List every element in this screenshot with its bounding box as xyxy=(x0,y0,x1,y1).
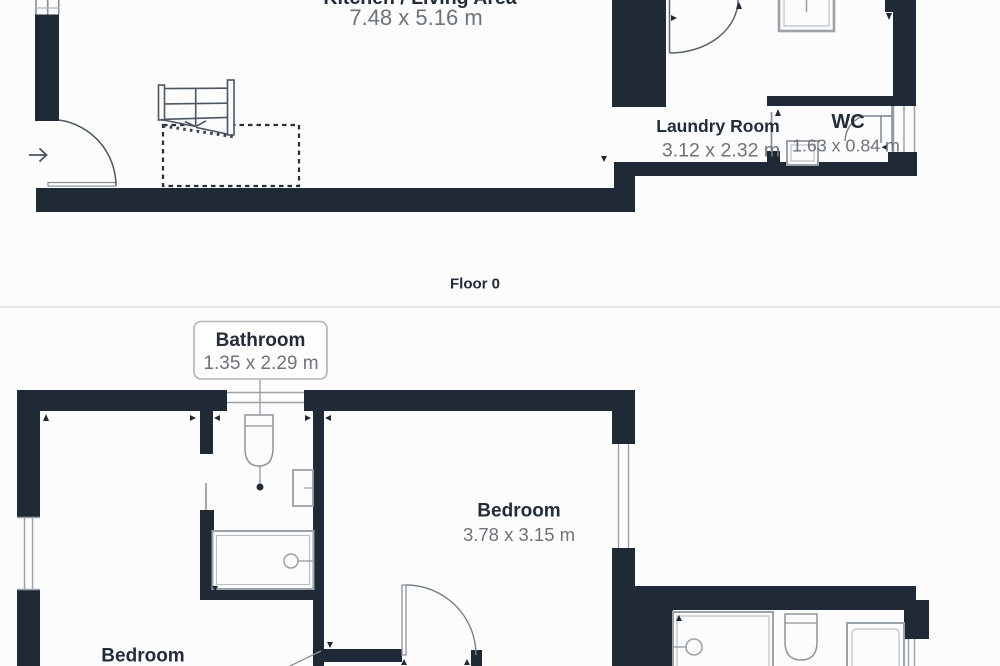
svg-text:3.78 x 3.15 m: 3.78 x 3.15 m xyxy=(463,524,575,545)
svg-text:Laundry Room: Laundry Room xyxy=(656,116,779,136)
svg-text:WC: WC xyxy=(831,111,864,133)
svg-text:1.35 x 2.29 m: 1.35 x 2.29 m xyxy=(203,353,318,374)
svg-text:1.63 x 0.84 m: 1.63 x 0.84 m xyxy=(792,136,900,156)
svg-text:3.12 x 2.32 m: 3.12 x 2.32 m xyxy=(662,140,780,162)
svg-text:Bedroom: Bedroom xyxy=(477,501,560,522)
svg-text:Bathroom: Bathroom xyxy=(216,330,306,351)
svg-text:Floor 0: Floor 0 xyxy=(450,276,500,293)
svg-text:Bedroom: Bedroom xyxy=(101,646,184,666)
svg-text:7.48 x 5.16 m: 7.48 x 5.16 m xyxy=(349,5,482,30)
